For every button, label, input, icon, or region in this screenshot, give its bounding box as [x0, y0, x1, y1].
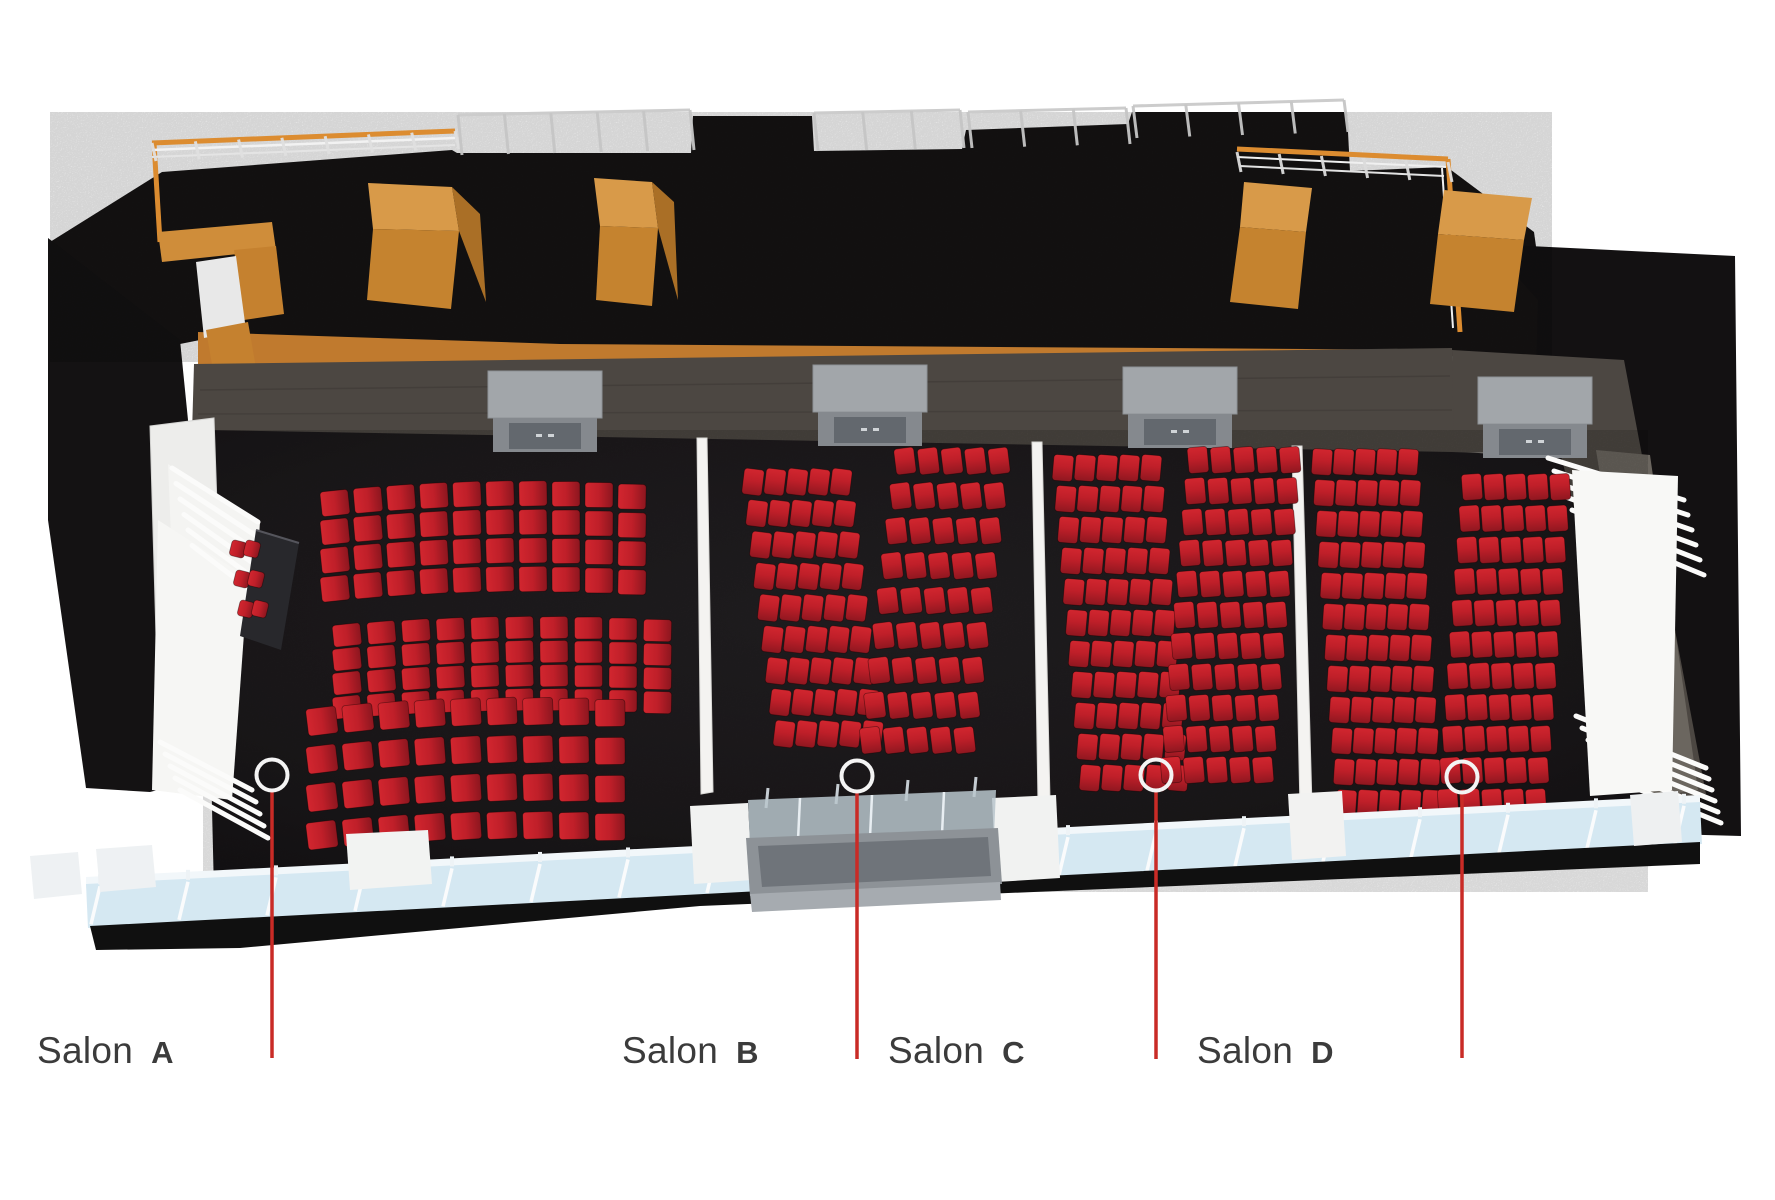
chair — [1542, 568, 1564, 595]
railing-post — [597, 112, 601, 152]
salon-d-stage — [1572, 470, 1678, 796]
chair — [1240, 632, 1262, 660]
chair — [1354, 448, 1376, 475]
white-pillar — [30, 852, 82, 899]
chair — [1415, 696, 1437, 723]
chair — [1474, 599, 1496, 626]
railing-post — [644, 111, 648, 151]
chair — [1173, 601, 1195, 629]
chair — [320, 575, 350, 603]
chair — [1513, 662, 1535, 689]
chair — [1257, 694, 1279, 722]
chair — [1182, 508, 1204, 536]
chair — [486, 811, 517, 840]
chair — [1060, 547, 1082, 575]
railing-post — [195, 141, 199, 159]
chair — [1079, 516, 1101, 544]
chair — [486, 773, 517, 802]
chair — [775, 562, 798, 590]
chair — [1153, 609, 1175, 637]
chair — [353, 515, 383, 542]
chair — [378, 700, 410, 730]
chair — [1079, 764, 1101, 792]
chair — [930, 726, 953, 754]
chair — [470, 640, 499, 663]
chair — [1109, 609, 1131, 637]
salon-c-label-word: Salon — [888, 1030, 984, 1072]
chair — [1274, 508, 1296, 536]
salon-a-label-letter: A — [151, 1035, 174, 1071]
chair — [813, 688, 836, 716]
chair — [305, 820, 338, 850]
chair — [1140, 702, 1162, 730]
chair — [887, 691, 910, 719]
chair — [1506, 757, 1528, 784]
chair — [1253, 477, 1275, 505]
chair — [1214, 663, 1236, 691]
chair — [1530, 725, 1552, 752]
chair — [1279, 446, 1301, 474]
chair — [320, 546, 350, 574]
chair — [1074, 702, 1096, 730]
chair — [1370, 665, 1392, 692]
chair — [1120, 733, 1142, 761]
left-railing-orange-rail — [152, 131, 455, 143]
chair — [1447, 662, 1469, 689]
chair — [835, 688, 858, 716]
chair — [900, 586, 923, 614]
chair — [1515, 631, 1537, 658]
chair — [1232, 725, 1254, 753]
chair — [1256, 446, 1278, 474]
chair — [332, 671, 362, 696]
chair — [243, 539, 261, 558]
chair — [753, 562, 776, 590]
chair — [1184, 477, 1206, 505]
chair — [763, 468, 786, 496]
chair — [540, 664, 568, 687]
chair — [807, 468, 830, 496]
chair — [1331, 727, 1353, 754]
salon-a-label: Salon A — [37, 1030, 174, 1072]
chair — [505, 616, 534, 639]
chair — [1466, 694, 1488, 721]
chair — [1503, 505, 1525, 532]
chair — [552, 567, 580, 592]
chair — [947, 586, 970, 614]
chair — [841, 562, 864, 590]
railing-post — [814, 113, 818, 151]
chair — [1187, 446, 1209, 474]
chair — [1115, 671, 1137, 699]
white-pillar — [1630, 791, 1682, 846]
chair — [819, 562, 842, 590]
chair — [505, 664, 534, 687]
chair — [1148, 547, 1170, 575]
chair — [910, 691, 933, 719]
chair — [1068, 640, 1090, 668]
chair — [1471, 631, 1493, 658]
chair — [1454, 568, 1476, 595]
chair — [342, 741, 375, 771]
chair — [320, 489, 350, 517]
chair — [1356, 479, 1378, 506]
chair — [951, 552, 974, 580]
chair — [1252, 756, 1274, 784]
chair — [401, 666, 431, 690]
chair — [1206, 756, 1228, 784]
chair — [559, 698, 590, 726]
chair — [486, 566, 515, 592]
salon-c-label: Salon C — [888, 1030, 1025, 1072]
chair — [885, 517, 908, 545]
chair — [904, 552, 927, 580]
chair — [932, 517, 955, 545]
chair — [771, 531, 794, 559]
chair — [1202, 539, 1224, 567]
chair — [450, 698, 482, 727]
railing-post — [960, 110, 964, 148]
chair — [1393, 696, 1415, 723]
chair — [585, 568, 613, 593]
chair — [1225, 539, 1247, 567]
glass-wall-post — [1682, 794, 1686, 804]
chair — [1496, 599, 1518, 626]
chair — [1484, 757, 1506, 784]
chair — [1341, 572, 1363, 599]
chair — [486, 509, 515, 535]
chair — [942, 621, 965, 649]
chair — [1452, 599, 1474, 626]
salon-d-label-letter: D — [1311, 1035, 1334, 1071]
chair — [741, 468, 764, 496]
door-handle — [1526, 440, 1532, 443]
glass-wall-post — [1066, 825, 1070, 835]
chair — [1087, 609, 1109, 637]
chair — [1540, 599, 1562, 626]
glass-wall-post — [274, 865, 278, 875]
chair — [1402, 510, 1424, 537]
floorplan-svg — [0, 0, 1775, 1200]
chair — [1171, 632, 1193, 660]
chair — [1387, 603, 1409, 630]
railing-top-rail — [458, 110, 690, 115]
chair — [1209, 725, 1231, 753]
railing-top-rail — [814, 110, 960, 113]
chair — [1191, 663, 1213, 691]
chair — [1076, 733, 1098, 761]
chair — [452, 510, 481, 536]
chair — [378, 776, 410, 806]
glass-wall-post — [1418, 807, 1422, 817]
chair — [1123, 516, 1145, 544]
chair — [540, 640, 568, 663]
chair — [1196, 601, 1218, 629]
chair — [1210, 446, 1232, 474]
entrance-door-4 — [1478, 377, 1592, 458]
salon-c-label-letter: C — [1002, 1035, 1025, 1071]
chair — [1205, 508, 1227, 536]
chair — [559, 812, 590, 840]
chair — [1410, 634, 1432, 661]
chair — [1456, 536, 1478, 563]
chair — [1313, 479, 1335, 506]
chair — [519, 566, 548, 592]
chair — [1329, 696, 1351, 723]
glass-wall-post — [450, 856, 454, 866]
chair — [552, 538, 580, 563]
double-door — [834, 417, 906, 443]
chair — [1498, 568, 1520, 595]
chair — [305, 744, 338, 774]
chair — [1537, 631, 1559, 658]
chair — [936, 482, 959, 510]
railing-post — [239, 140, 243, 158]
chair — [1217, 632, 1239, 660]
chair — [585, 482, 613, 507]
white-pillar — [690, 803, 752, 884]
chair — [401, 618, 431, 642]
glass-wall-post — [186, 870, 190, 880]
chair — [1359, 510, 1381, 537]
chair — [643, 619, 671, 642]
chair — [419, 511, 449, 538]
chair — [1478, 536, 1500, 563]
chair — [1098, 733, 1120, 761]
chair — [1339, 541, 1361, 568]
chair — [519, 509, 548, 535]
chair — [609, 666, 637, 688]
chair — [783, 625, 806, 653]
chair — [1397, 448, 1419, 475]
chair — [1384, 572, 1406, 599]
chair — [979, 517, 1002, 545]
railing-post — [551, 113, 555, 153]
chair — [829, 468, 852, 496]
chair — [789, 499, 812, 527]
chair — [919, 621, 942, 649]
chair — [1183, 756, 1205, 784]
salon-d-label-word: Salon — [1197, 1030, 1293, 1072]
chair — [849, 625, 872, 653]
chair — [1469, 662, 1491, 689]
chair — [522, 773, 553, 801]
chair — [1121, 485, 1143, 513]
chair — [815, 531, 838, 559]
chair — [386, 484, 416, 511]
chair — [436, 617, 465, 641]
salon-d-label: Salon D — [1197, 1030, 1334, 1072]
chair — [419, 568, 449, 595]
chair — [1481, 505, 1503, 532]
chair — [757, 594, 780, 622]
glass-wall-post — [1506, 803, 1510, 813]
chair — [452, 481, 481, 507]
chair — [618, 484, 647, 510]
chair — [1372, 696, 1394, 723]
projection-screen — [1572, 470, 1678, 796]
door-handle — [548, 434, 554, 437]
chair — [595, 813, 625, 840]
chair — [1365, 603, 1387, 630]
chair — [1099, 485, 1121, 513]
chair — [883, 726, 906, 754]
chair — [522, 811, 553, 839]
glass-wall-post — [538, 852, 542, 862]
chair — [1483, 473, 1505, 500]
entrance-door-1 — [488, 371, 602, 452]
chair — [1268, 570, 1290, 598]
chair — [960, 482, 983, 510]
chair — [436, 641, 465, 665]
chair — [1361, 541, 1383, 568]
chair — [519, 481, 548, 507]
chair — [957, 691, 980, 719]
chair — [378, 738, 410, 768]
chair — [1071, 671, 1093, 699]
chair — [1126, 547, 1148, 575]
chair — [1090, 640, 1112, 668]
chair — [1346, 634, 1368, 661]
door-roof — [1478, 377, 1592, 424]
chair — [1140, 454, 1162, 482]
chair — [1476, 568, 1498, 595]
floorplan-render: Salon A Salon B Salon C Salon D — [0, 0, 1775, 1200]
chair — [1276, 477, 1298, 505]
chair — [928, 552, 951, 580]
glass-wall-post — [626, 847, 630, 857]
chair — [332, 647, 362, 672]
white-pillar — [1288, 791, 1346, 860]
chair — [893, 447, 916, 475]
chair — [1165, 694, 1187, 722]
chair — [552, 510, 580, 535]
chair — [574, 665, 602, 687]
chair — [1532, 694, 1554, 721]
chair — [1527, 473, 1549, 500]
chair — [1322, 603, 1344, 630]
chair — [522, 735, 553, 763]
white-pillar — [96, 845, 156, 892]
chair — [414, 737, 446, 766]
chair — [1464, 725, 1486, 752]
door-handle — [1183, 430, 1189, 433]
chair — [1549, 473, 1571, 500]
chair — [519, 538, 548, 564]
chair — [1074, 454, 1096, 482]
door-handle — [1171, 430, 1177, 433]
door-handle — [1538, 440, 1544, 443]
chair — [1520, 568, 1542, 595]
chair — [1486, 725, 1508, 752]
chair — [305, 782, 338, 812]
chair — [975, 552, 998, 580]
chair — [1376, 758, 1398, 785]
chair — [450, 812, 482, 841]
chair — [1096, 702, 1118, 730]
chair — [1316, 510, 1338, 537]
chair — [450, 736, 482, 765]
chair — [749, 531, 772, 559]
chair — [367, 644, 397, 668]
salon-b-label-word: Salon — [622, 1030, 718, 1072]
chair — [938, 656, 961, 684]
double-door — [1499, 429, 1571, 455]
chair — [787, 657, 810, 685]
chair — [923, 586, 946, 614]
chair — [1535, 662, 1557, 689]
chair — [251, 599, 269, 618]
chair — [1406, 572, 1428, 599]
chair — [793, 531, 816, 559]
chair — [1229, 756, 1251, 784]
chair — [983, 482, 1006, 510]
chair — [1444, 694, 1466, 721]
chair — [805, 625, 828, 653]
chair — [1104, 547, 1126, 575]
chair — [342, 779, 375, 809]
chair — [908, 517, 931, 545]
glass-wall-post — [1242, 816, 1246, 826]
chair — [831, 657, 854, 685]
chair — [1380, 510, 1402, 537]
chair — [966, 621, 989, 649]
chair — [891, 656, 914, 684]
chair — [833, 499, 856, 527]
chair — [773, 720, 796, 748]
railing-post — [368, 134, 372, 152]
chair — [1419, 758, 1441, 785]
chair — [1363, 572, 1385, 599]
chair — [618, 512, 647, 538]
chair — [414, 699, 446, 728]
chair — [837, 531, 860, 559]
chair — [585, 511, 613, 536]
chair — [320, 518, 350, 546]
chair — [761, 625, 784, 653]
chair — [353, 572, 383, 599]
railing-post — [325, 136, 329, 154]
chair — [1413, 665, 1435, 692]
chair — [1057, 516, 1079, 544]
chair — [353, 543, 383, 570]
chair — [845, 594, 868, 622]
chair — [1318, 541, 1340, 568]
chair — [1168, 663, 1190, 691]
chair — [1194, 632, 1216, 660]
chair — [486, 538, 515, 564]
chair — [1493, 631, 1515, 658]
chair — [414, 775, 446, 804]
chair — [353, 486, 383, 513]
chair — [1107, 578, 1129, 606]
chair — [1500, 536, 1522, 563]
chair — [823, 594, 846, 622]
chair — [1522, 536, 1544, 563]
chair — [386, 569, 416, 596]
chair — [1145, 516, 1167, 544]
chair — [643, 691, 671, 714]
door-roof — [1123, 367, 1237, 414]
chair — [863, 691, 886, 719]
chair — [386, 541, 416, 568]
chair — [1525, 505, 1547, 532]
chair — [486, 697, 517, 726]
chair — [1417, 727, 1439, 754]
chair — [1404, 541, 1426, 568]
chair — [915, 656, 938, 684]
chair — [1265, 601, 1287, 629]
